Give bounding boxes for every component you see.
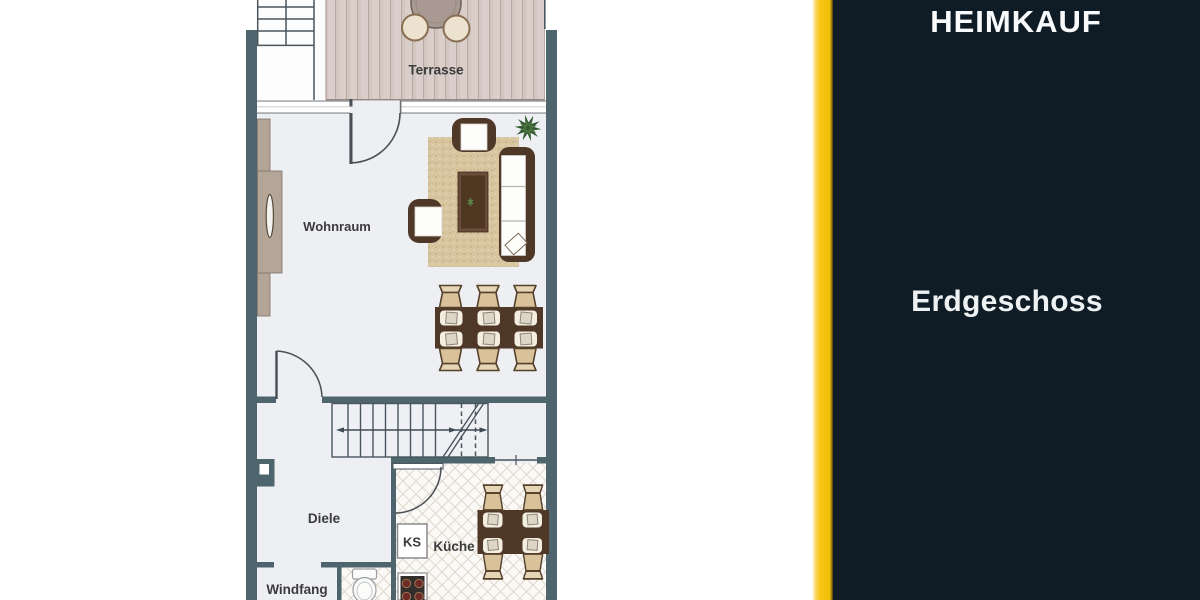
svg-text:Erdgeschoss: Erdgeschoss — [911, 285, 1103, 318]
svg-text:Wohnraum: Wohnraum — [303, 219, 371, 234]
svg-text:Küche: Küche — [433, 539, 475, 554]
svg-text:HEIMKAUF: HEIMKAUF — [930, 4, 1102, 39]
svg-text:Diele: Diele — [308, 511, 341, 526]
svg-text:KS: KS — [403, 535, 421, 550]
svg-text:Windfang: Windfang — [266, 582, 327, 597]
svg-text:Terrasse: Terrasse — [408, 63, 464, 78]
